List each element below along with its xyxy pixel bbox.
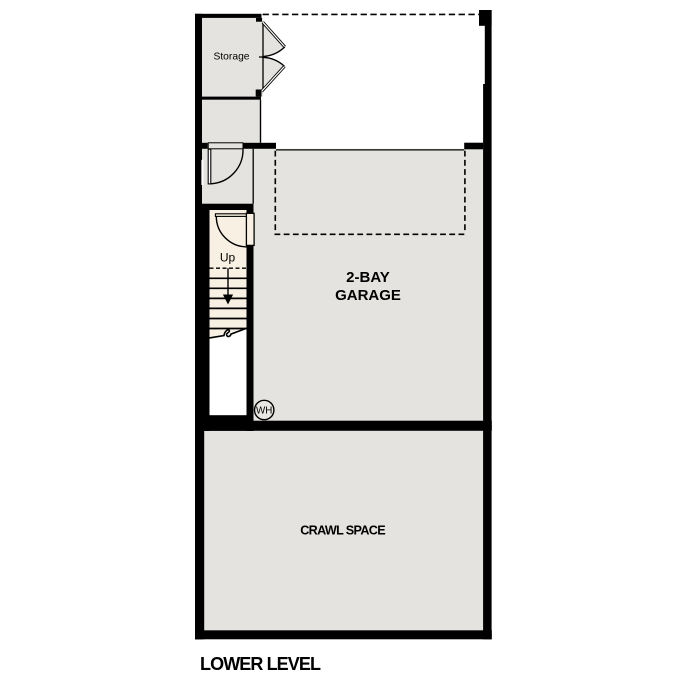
svg-text:Up: Up bbox=[220, 250, 236, 264]
svg-text:Storage: Storage bbox=[213, 52, 249, 63]
svg-text:2-BAY: 2-BAY bbox=[346, 269, 390, 286]
svg-text:LOWER LEVEL: LOWER LEVEL bbox=[200, 654, 321, 674]
svg-text:CRAWL SPACE: CRAWL SPACE bbox=[300, 524, 385, 538]
svg-text:WH: WH bbox=[256, 405, 272, 416]
svg-text:GARAGE: GARAGE bbox=[335, 287, 401, 304]
